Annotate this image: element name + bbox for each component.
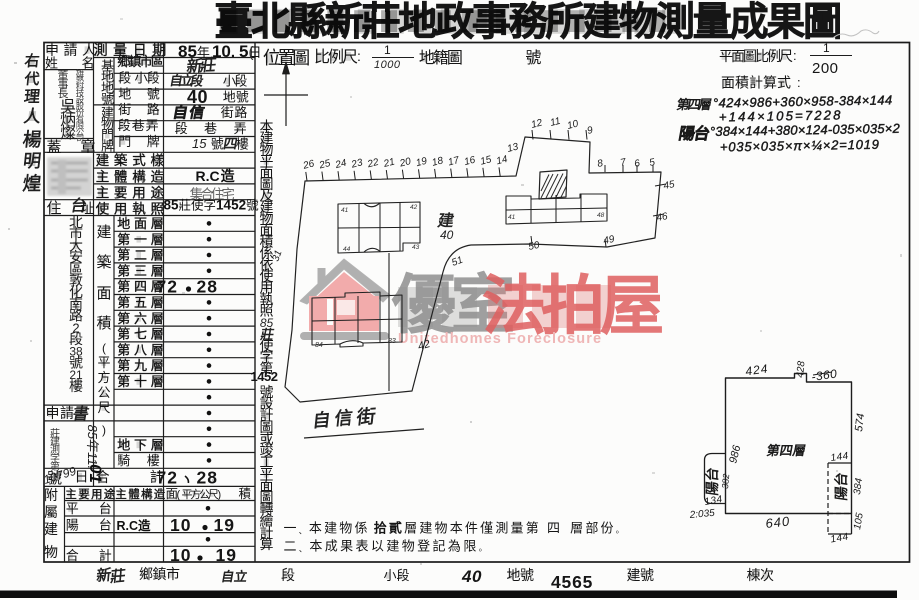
svg-text:楊: 楊	[21, 129, 42, 151]
svg-text:21: 21	[382, 157, 396, 171]
svg-text:23: 23	[349, 157, 364, 171]
svg-text:19: 19	[214, 515, 235, 535]
svg-text:31: 31	[270, 249, 284, 263]
svg-text:二、本成果表以建物登記為限。: 二、本成果表以建物登記為限。	[284, 539, 490, 554]
svg-text:24: 24	[333, 158, 348, 172]
svg-text:2:035: 2:035	[688, 508, 715, 521]
svg-text:84: 84	[315, 342, 323, 349]
svg-text:R.C造: R.C造	[196, 168, 235, 184]
svg-text:一、本建物係拾貳層建物本件僅測量第四層部份。: 一、本建物係拾貳層建物本件僅測量第四層部份。	[284, 521, 626, 536]
svg-text:8: 8	[596, 158, 604, 170]
svg-text:44: 44	[343, 246, 351, 253]
svg-text:14: 14	[495, 154, 509, 167]
svg-text:48: 48	[597, 212, 605, 219]
svg-text:莊: 莊	[110, 568, 126, 586]
svg-text:信: 信	[188, 104, 206, 122]
svg-text:台: 台	[692, 124, 711, 143]
svg-text::: :	[793, 48, 797, 63]
svg-text:9: 9	[586, 125, 594, 137]
svg-text:10: 10	[170, 545, 191, 565]
svg-text:(: (	[249, 44, 254, 61]
svg-text:134: 134	[704, 494, 724, 508]
svg-text:1000: 1000	[374, 59, 401, 71]
svg-text:明: 明	[22, 151, 42, 171]
svg-text:83: 83	[388, 338, 396, 345]
svg-text:7: 7	[619, 157, 627, 169]
svg-text:40: 40	[440, 228, 454, 242]
svg-text:986: 986	[727, 443, 743, 465]
svg-text:46: 46	[656, 211, 669, 224]
svg-text:105: 105	[852, 512, 866, 531]
svg-text:1: 1	[823, 41, 830, 55]
svg-text:428: 428	[795, 360, 807, 378]
svg-text:19: 19	[216, 545, 237, 565]
svg-text:17: 17	[447, 155, 461, 168]
svg-text:層: 層	[791, 443, 807, 458]
svg-text::: :	[357, 48, 361, 64]
svg-text:R.C造: R.C造	[117, 518, 152, 533]
svg-text:書: 書	[71, 405, 90, 423]
svg-text:12: 12	[530, 117, 544, 130]
svg-text:20: 20	[398, 156, 413, 170]
svg-text:+035×035×π×¼×2=1019: +035×035×π×¼×2=1019	[720, 137, 880, 155]
svg-text:49: 49	[602, 234, 616, 247]
svg-text:煌: 煌	[21, 173, 42, 195]
svg-text:51: 51	[450, 255, 464, 269]
svg-text:18: 18	[431, 155, 445, 168]
svg-text:理: 理	[23, 88, 41, 106]
svg-text:85莊使字1452號: 85莊使字1452號	[164, 198, 260, 213]
svg-text:信: 信	[334, 408, 354, 429]
svg-text:(: (	[177, 489, 181, 501]
svg-text:代: 代	[24, 71, 41, 88]
svg-text:11: 11	[549, 116, 562, 129]
svg-text:45: 45	[663, 179, 676, 192]
svg-text::: :	[797, 75, 801, 90]
svg-text:384: 384	[852, 477, 865, 495]
svg-text:10: 10	[566, 118, 580, 131]
svg-text:莊: 莊	[199, 56, 217, 75]
svg-text:): )	[102, 423, 106, 437]
svg-text:40: 40	[461, 567, 482, 586]
svg-text:41: 41	[508, 214, 516, 221]
svg-text:自: 自	[312, 410, 332, 431]
svg-text:16: 16	[463, 155, 477, 168]
svg-text:43: 43	[412, 244, 420, 251]
svg-text:640: 640	[765, 513, 791, 531]
svg-text:19: 19	[415, 156, 429, 169]
svg-text:144: 144	[830, 531, 850, 545]
svg-text:層: 層	[697, 97, 713, 112]
svg-text:4565: 4565	[551, 572, 593, 592]
svg-text:72: 72	[157, 468, 178, 488]
svg-text:立: 立	[233, 569, 249, 584]
svg-text:424: 424	[744, 361, 769, 378]
svg-text:自: 自	[171, 104, 189, 122]
svg-text:25: 25	[317, 158, 332, 172]
svg-text:13: 13	[506, 141, 520, 154]
svg-text:1: 1	[384, 43, 391, 57]
svg-text:28: 28	[197, 468, 218, 488]
svg-text:42: 42	[410, 204, 418, 211]
svg-text:右: 右	[24, 53, 41, 70]
svg-text:6: 6	[633, 158, 641, 170]
svg-text:15: 15	[192, 136, 207, 151]
svg-text:(: (	[102, 341, 106, 355]
svg-text:10: 10	[170, 515, 191, 535]
svg-text:5: 5	[648, 157, 656, 169]
svg-text:15: 15	[479, 154, 493, 167]
svg-text:): )	[218, 489, 222, 501]
svg-text:200: 200	[812, 60, 839, 77]
svg-text:1452: 1452	[251, 369, 278, 384]
svg-text:574: 574	[853, 413, 867, 433]
svg-text:人: 人	[23, 107, 42, 126]
svg-text:26: 26	[301, 158, 316, 172]
svg-text:陽台: 陽台	[704, 466, 720, 496]
svg-text:街: 街	[355, 406, 376, 429]
svg-text:144: 144	[830, 451, 850, 464]
svg-text:28: 28	[197, 277, 218, 297]
svg-text:41: 41	[341, 207, 349, 214]
svg-text:22: 22	[365, 157, 380, 171]
svg-text:382: 382	[720, 473, 731, 489]
svg-text:50: 50	[527, 240, 541, 253]
svg-text:陽台: 陽台	[833, 471, 849, 501]
svg-text:72: 72	[157, 277, 178, 297]
